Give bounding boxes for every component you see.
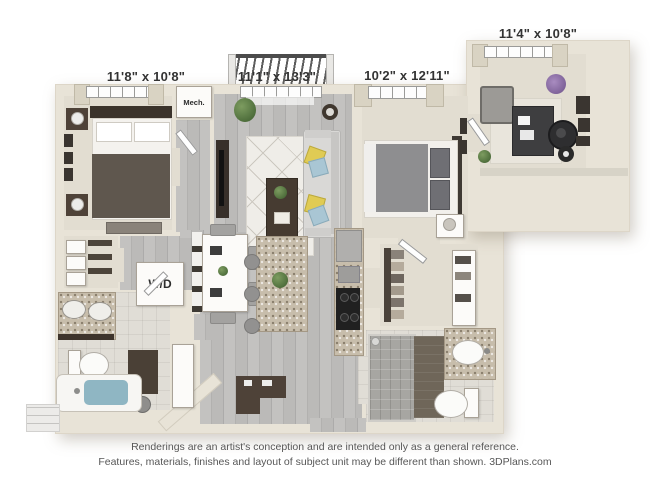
toilet bbox=[434, 390, 468, 418]
bed-pillow bbox=[430, 180, 450, 210]
bed-bench bbox=[106, 222, 162, 234]
dining-chair bbox=[210, 224, 236, 236]
bed-pillow bbox=[134, 122, 170, 142]
bed-sheet-fold bbox=[364, 144, 376, 212]
bed-pillow bbox=[96, 122, 132, 142]
dining-chair bbox=[210, 312, 236, 324]
mechanical-closet-label: Mech. bbox=[177, 87, 211, 117]
stove-burner bbox=[340, 313, 349, 322]
refrigerator bbox=[336, 230, 362, 262]
mechanical-closet: Mech. bbox=[176, 86, 212, 118]
hanging-clothes bbox=[391, 250, 404, 259]
sofa-arm bbox=[305, 130, 331, 138]
linen-cabinet bbox=[172, 344, 194, 408]
purple-plant bbox=[546, 74, 566, 94]
tv bbox=[219, 150, 224, 206]
sofa-arm bbox=[305, 228, 331, 236]
desk-papers bbox=[518, 116, 530, 125]
office-chair-seat bbox=[556, 128, 566, 138]
vanity-cabinet bbox=[58, 334, 114, 340]
wall-art bbox=[576, 136, 590, 146]
placemat bbox=[210, 288, 222, 297]
closet-left-doorway bbox=[114, 248, 124, 282]
storage-box bbox=[66, 256, 86, 270]
bar-stool bbox=[244, 318, 260, 334]
disclaimer-line-2: Features, materials, finishes and layout… bbox=[0, 455, 650, 470]
table-plant bbox=[274, 186, 287, 199]
sofa-back bbox=[331, 132, 339, 234]
bed-blanket bbox=[92, 154, 170, 218]
faucet bbox=[484, 348, 490, 354]
bathtub-water bbox=[84, 380, 128, 405]
bedroom-right-window bbox=[368, 86, 430, 99]
wall-art bbox=[64, 152, 73, 164]
closet-rod bbox=[384, 248, 391, 322]
wall-art bbox=[460, 140, 467, 154]
floor-lamp-bulb bbox=[563, 151, 569, 157]
living-room-sheer bbox=[246, 96, 314, 105]
closet-shelf bbox=[88, 254, 112, 260]
closet-shelf bbox=[88, 240, 112, 246]
sink bbox=[62, 300, 86, 319]
wall-art bbox=[64, 168, 73, 181]
table-tray bbox=[274, 212, 290, 224]
den-window bbox=[484, 46, 556, 58]
console-decor bbox=[244, 380, 252, 386]
hanging-clothes bbox=[391, 262, 404, 271]
island-plant bbox=[272, 272, 288, 288]
bed-headboard bbox=[90, 106, 172, 118]
bedroom-right-curtain bbox=[426, 84, 444, 107]
entry-doorway bbox=[310, 418, 366, 432]
wall-art bbox=[64, 134, 73, 147]
wall-art bbox=[576, 96, 590, 114]
kitchen-sink bbox=[338, 266, 360, 283]
table-lamp bbox=[326, 108, 334, 116]
stove-burner bbox=[350, 313, 359, 322]
shower-head bbox=[371, 337, 380, 346]
bedroom-right-dimension-label: 10'2" x 12'11" bbox=[364, 68, 450, 83]
stove-burner bbox=[350, 293, 359, 302]
stove-burner bbox=[340, 293, 349, 302]
den-wall-shading bbox=[480, 168, 628, 176]
potted-plant bbox=[478, 150, 491, 163]
disclaimer: Renderings are an artist's conception an… bbox=[0, 440, 650, 470]
closet-shelf bbox=[88, 268, 112, 274]
balcony-post-right bbox=[326, 54, 334, 88]
desk-laptop bbox=[520, 130, 534, 140]
shelf-items bbox=[455, 256, 471, 264]
table-lamp bbox=[71, 198, 84, 211]
wall-art bbox=[460, 118, 467, 134]
console-decor bbox=[262, 380, 272, 386]
bed-pillow bbox=[430, 148, 450, 178]
entry-console bbox=[236, 396, 260, 414]
shelf-items bbox=[455, 272, 471, 280]
bar-stool bbox=[244, 254, 260, 270]
shower bbox=[368, 334, 416, 422]
hanging-clothes bbox=[391, 298, 404, 307]
towel-shelf bbox=[26, 404, 60, 432]
bedroom-left-curtain bbox=[148, 84, 164, 105]
bar-stool bbox=[244, 286, 260, 302]
tub-faucet bbox=[74, 388, 80, 394]
potted-plant bbox=[234, 98, 256, 122]
table-lamp bbox=[443, 218, 456, 231]
den-curtain bbox=[552, 44, 568, 67]
table-lamp bbox=[71, 112, 84, 125]
living-room-dimension-label: 11'1" x 13'3" bbox=[238, 69, 316, 84]
disclaimer-line-1: Renderings are an artist's conception an… bbox=[0, 440, 650, 455]
french-door-panel bbox=[192, 232, 202, 312]
hanging-clothes bbox=[391, 274, 404, 283]
sink bbox=[88, 302, 112, 321]
storage-box bbox=[66, 240, 86, 254]
hanging-clothes bbox=[391, 286, 404, 295]
floor-plan-rendering: Mech. W/D bbox=[0, 0, 650, 488]
balcony-post-left bbox=[228, 54, 236, 88]
hanging-clothes bbox=[391, 310, 404, 319]
sink bbox=[452, 340, 484, 365]
shelf-items bbox=[455, 294, 471, 302]
bedroom-left-dimension-label: 11'8" x 10'8" bbox=[107, 69, 185, 84]
table-centerpiece bbox=[218, 266, 228, 276]
den-dimension-label: 11'4" x 10'8" bbox=[499, 26, 577, 41]
storage-box bbox=[66, 272, 86, 286]
bedroom-left-window bbox=[86, 86, 152, 98]
placemat bbox=[210, 246, 222, 255]
wall-art bbox=[578, 118, 590, 132]
armchair bbox=[480, 86, 514, 124]
